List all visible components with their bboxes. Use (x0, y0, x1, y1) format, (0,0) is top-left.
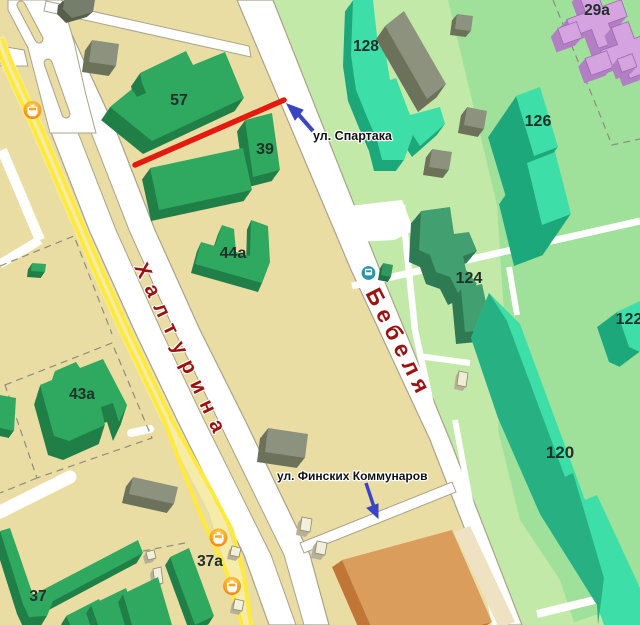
svg-text:57: 57 (170, 92, 188, 109)
svg-text:128: 128 (353, 38, 379, 55)
svg-text:37: 37 (29, 588, 46, 605)
svg-text:120: 120 (546, 443, 574, 462)
svg-text:29а: 29а (584, 2, 610, 19)
svg-text:44а: 44а (220, 245, 247, 262)
svg-text:ул. Спартака: ул. Спартака (313, 129, 393, 143)
svg-text:ул. Финских Коммунаров: ул. Финских Коммунаров (277, 469, 427, 483)
svg-text:122: 122 (616, 311, 640, 328)
svg-text:39: 39 (256, 141, 274, 158)
svg-text:43а: 43а (69, 386, 95, 403)
svg-text:126: 126 (525, 113, 552, 130)
svg-text:124: 124 (456, 270, 483, 287)
svg-text:37а: 37а (197, 553, 223, 570)
